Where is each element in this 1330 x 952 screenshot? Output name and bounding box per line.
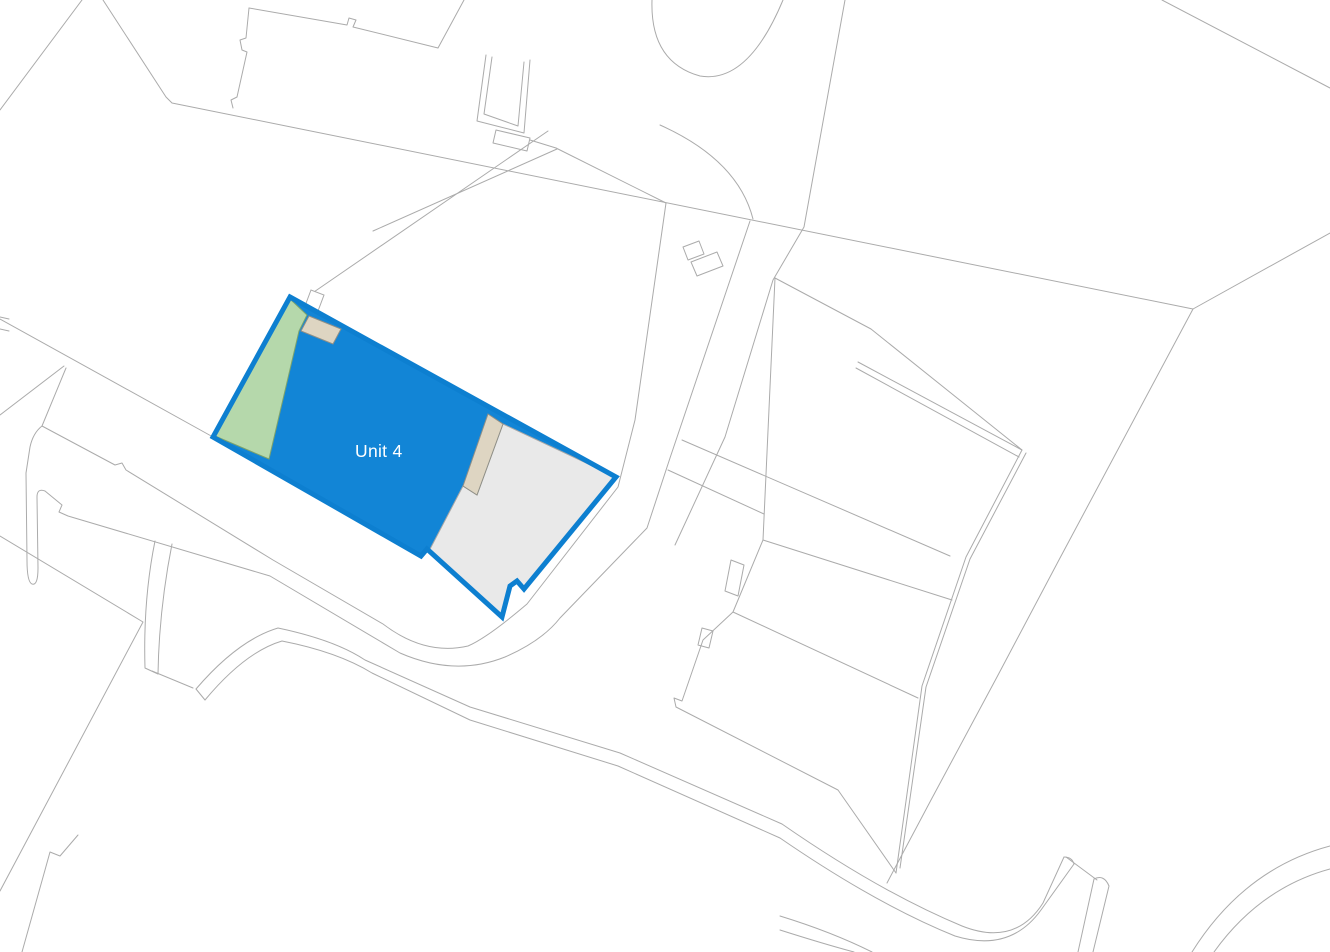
boundary-line <box>1193 233 1330 309</box>
boundary-line <box>1162 0 1330 88</box>
road-curve <box>652 0 783 77</box>
boundary-line <box>103 0 1193 309</box>
boundary-line <box>0 0 82 110</box>
road-edge-main <box>196 628 1064 933</box>
building-outline <box>683 241 723 276</box>
road-corner-arc <box>1192 846 1330 952</box>
block-division <box>682 440 952 698</box>
boundary-line <box>675 0 845 545</box>
unit4-parcel[interactable]: Unit 4 <box>213 297 616 617</box>
site-plan-map: Unit 4 <box>0 0 1330 952</box>
boundary-line <box>0 366 66 426</box>
road-edge-main <box>205 641 1074 941</box>
unit4-label: Unit 4 <box>355 441 403 461</box>
road-spur <box>145 541 172 674</box>
parcel-outline <box>249 0 464 48</box>
block-outline <box>674 278 896 873</box>
road-connector <box>152 671 205 700</box>
boundary-line <box>0 536 143 891</box>
boundary-line <box>22 835 78 952</box>
boundary-line <box>887 309 1193 883</box>
boundary-line <box>373 149 557 231</box>
block-wall-band <box>896 450 1026 873</box>
road-end-cap <box>1064 857 1074 864</box>
building-outline <box>484 57 524 126</box>
road-curve <box>660 125 753 219</box>
tick-mark <box>0 317 9 331</box>
boundary-line <box>668 470 764 514</box>
boundary-line <box>556 148 666 203</box>
block-wall-strip <box>856 362 1022 457</box>
road-stub <box>1066 857 1109 952</box>
block-outline <box>775 278 1022 450</box>
parcel-outline <box>231 8 249 108</box>
map-canvas: Unit 4 <box>0 0 1330 952</box>
road-branch <box>780 916 872 952</box>
block-tab <box>698 560 744 648</box>
boundary-line <box>0 319 213 437</box>
base-map-lines <box>0 0 1330 952</box>
